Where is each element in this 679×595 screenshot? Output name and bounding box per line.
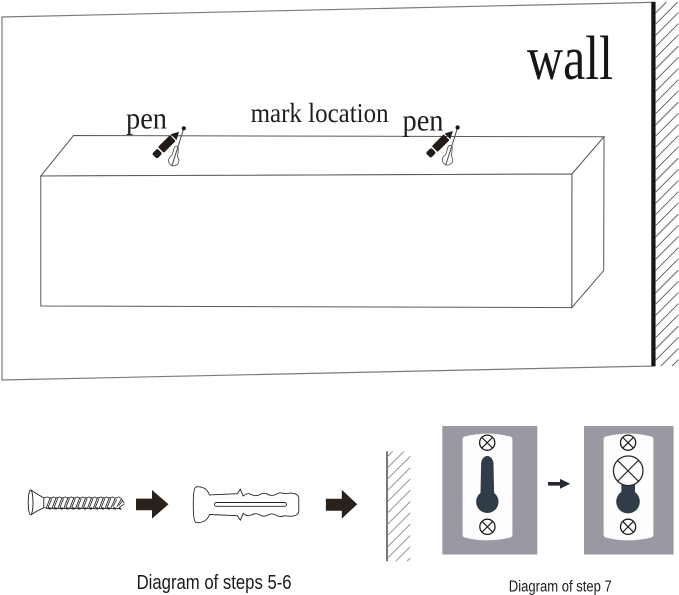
- svg-text:Diagram of steps 5-6: Diagram of steps 5-6: [137, 572, 292, 594]
- svg-text:mark location: mark location: [251, 98, 389, 128]
- svg-text:Diagram of step 7: Diagram of step 7: [509, 578, 612, 595]
- svg-text:pen: pen: [403, 103, 444, 138]
- svg-text:wall: wall: [527, 25, 613, 93]
- svg-text:pen: pen: [126, 101, 167, 136]
